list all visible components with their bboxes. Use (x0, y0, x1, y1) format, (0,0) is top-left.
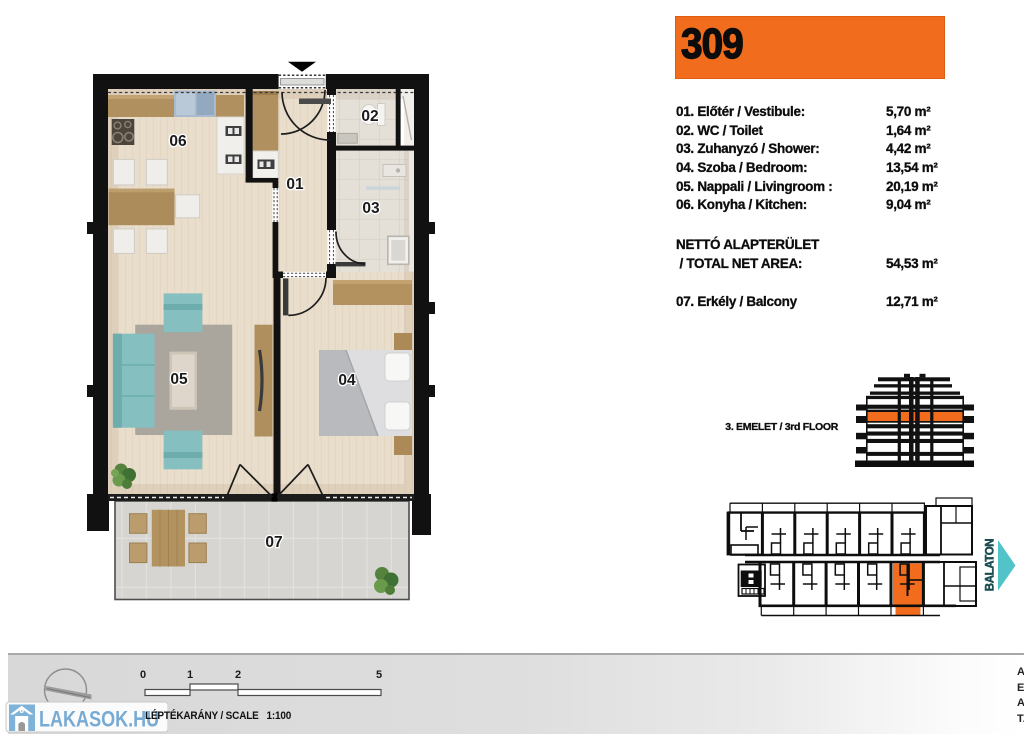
svg-text:BALATON: BALATON (985, 539, 997, 591)
svg-text:02: 02 (361, 108, 378, 125)
svg-text:03: 03 (362, 200, 380, 217)
svg-text:5: 5 (376, 669, 382, 681)
svg-text:LÉPTÉKARÁNY / SCALE 1:100: LÉPTÉKARÁNY / SCALE 1:100 (145, 708, 291, 722)
svg-text:0: 0 (140, 669, 146, 681)
svg-text:2: 2 (235, 669, 241, 681)
svg-text:LAKASOK.HU: LAKASOK.HU (39, 708, 159, 732)
svg-text:04: 04 (338, 372, 356, 389)
svg-text:07: 07 (265, 534, 282, 551)
svg-text:06: 06 (169, 133, 187, 150)
svg-text:1: 1 (187, 669, 193, 681)
svg-text:01: 01 (286, 176, 304, 193)
svg-text:05: 05 (170, 371, 188, 388)
